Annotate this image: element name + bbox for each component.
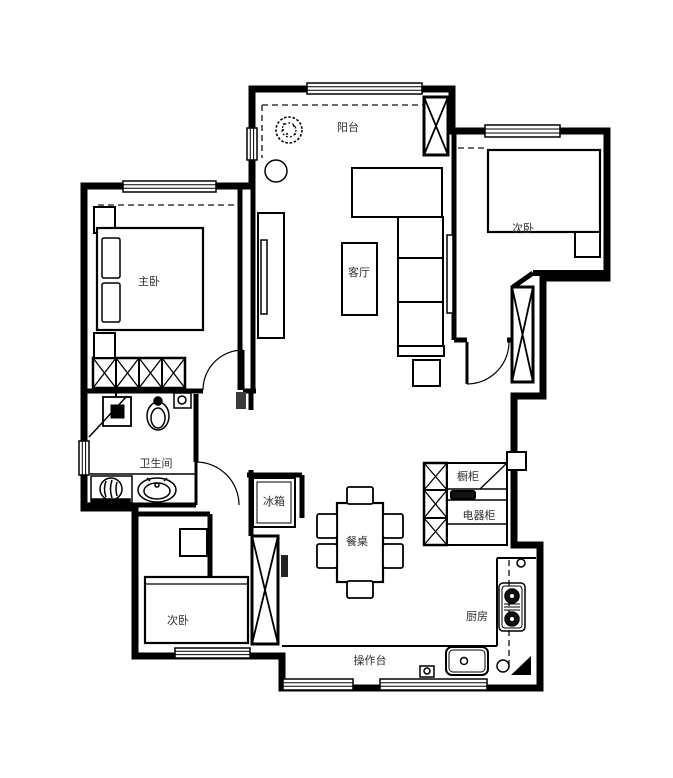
bathroom-fixtures [89, 393, 195, 503]
master-wardrobe [93, 358, 185, 388]
window-bathroom-left [79, 441, 89, 475]
sofa-armrest [398, 346, 444, 356]
balcony-fixtures [265, 117, 302, 182]
door-arc [467, 342, 509, 384]
stool-icon [265, 160, 287, 182]
fixture-label-cupboard: 橱柜 [457, 469, 479, 483]
plant-icon [276, 117, 302, 143]
bedroom2-furniture [488, 150, 600, 257]
chair [383, 514, 403, 538]
stove-icon [499, 583, 525, 631]
window-bottom-right [380, 679, 487, 690]
bathroom-door [196, 462, 239, 505]
washing-machine-icon [91, 476, 132, 503]
radiator [447, 235, 453, 313]
entry-marker-triangle [511, 656, 531, 675]
chair [347, 581, 373, 598]
nightstand [180, 529, 207, 556]
sink-icon [446, 647, 488, 675]
corner-shelf [174, 393, 191, 408]
door-arc [203, 350, 243, 390]
window-master-top [123, 181, 216, 192]
chair [383, 544, 403, 568]
column-bedroom3-right [252, 536, 278, 644]
fixture-label-fridge: 冰箱 [263, 494, 285, 508]
bedroom2-bed [488, 150, 600, 232]
fixture-label-appliance-cabinet: 电器柜 [463, 509, 496, 522]
counter-edge [282, 558, 536, 646]
room-label-bathroom: 卫生间 [140, 456, 173, 470]
master-bedroom-door [203, 350, 243, 390]
room-label-bedroom-top-right: 次卧 [512, 221, 534, 235]
room-label-master-bedroom: 主卧 [138, 275, 160, 288]
column-bedroom2-door [512, 287, 533, 382]
fixture-label-countertop: 操作台 [354, 653, 387, 667]
drain-icon [497, 660, 509, 672]
sofa-cushion [398, 302, 443, 346]
nightstand [94, 333, 115, 358]
toilet-icon [147, 397, 169, 430]
sliding-door-track [281, 555, 288, 577]
floor-plan-svg: 阳台 客厅 主卧 次卧 卫生间 次卧 厨房 冰箱 餐桌 橱柜 电器柜 操作台 [0, 0, 673, 778]
window-bedroom3-bottom [175, 648, 250, 658]
bedroom2-chamfer-wall [513, 273, 533, 287]
dining-furniture [253, 463, 507, 598]
sofa-chaise [352, 168, 442, 217]
window-bedroom2-top [485, 125, 560, 137]
bedroom3-bed [145, 577, 248, 643]
drain-icon [517, 559, 525, 567]
fixture-label-dining-table: 餐桌 [346, 534, 368, 548]
basin-icon [138, 478, 176, 502]
door-frame-block [236, 392, 246, 409]
wall-niche [507, 452, 526, 470]
tv-icon [261, 240, 267, 314]
sofa-cushion [398, 217, 443, 258]
column-balcony-right [424, 97, 448, 155]
window-bottom-left [283, 679, 353, 690]
window-balcony-left [247, 128, 257, 160]
kitchen-fixtures [282, 558, 536, 677]
gas-valve-icon [420, 666, 434, 677]
pillow [102, 238, 120, 278]
chair [317, 544, 337, 568]
chair [317, 514, 337, 538]
floor-plan-page: 阳台 客厅 主卧 次卧 卫生间 次卧 厨房 冰箱 餐桌 橱柜 电器柜 操作台 [0, 0, 673, 778]
sofa-cushion [398, 258, 443, 302]
column-cabinet-strip [424, 463, 447, 545]
room-label-balcony: 阳台 [337, 120, 359, 134]
room-label-kitchen: 厨房 [466, 610, 488, 623]
side-table [413, 360, 440, 386]
coffee-table [342, 243, 377, 315]
door-arc [196, 462, 239, 505]
small-appliance-icon [451, 491, 475, 499]
bedroom2-door [467, 342, 509, 384]
window-balcony-top [307, 83, 422, 94]
chair [347, 487, 373, 504]
room-label-bedroom-bottom-left: 次卧 [167, 613, 189, 627]
pillow [102, 283, 120, 322]
nightstand [575, 232, 600, 257]
room-label-living-room: 客厅 [348, 265, 370, 279]
